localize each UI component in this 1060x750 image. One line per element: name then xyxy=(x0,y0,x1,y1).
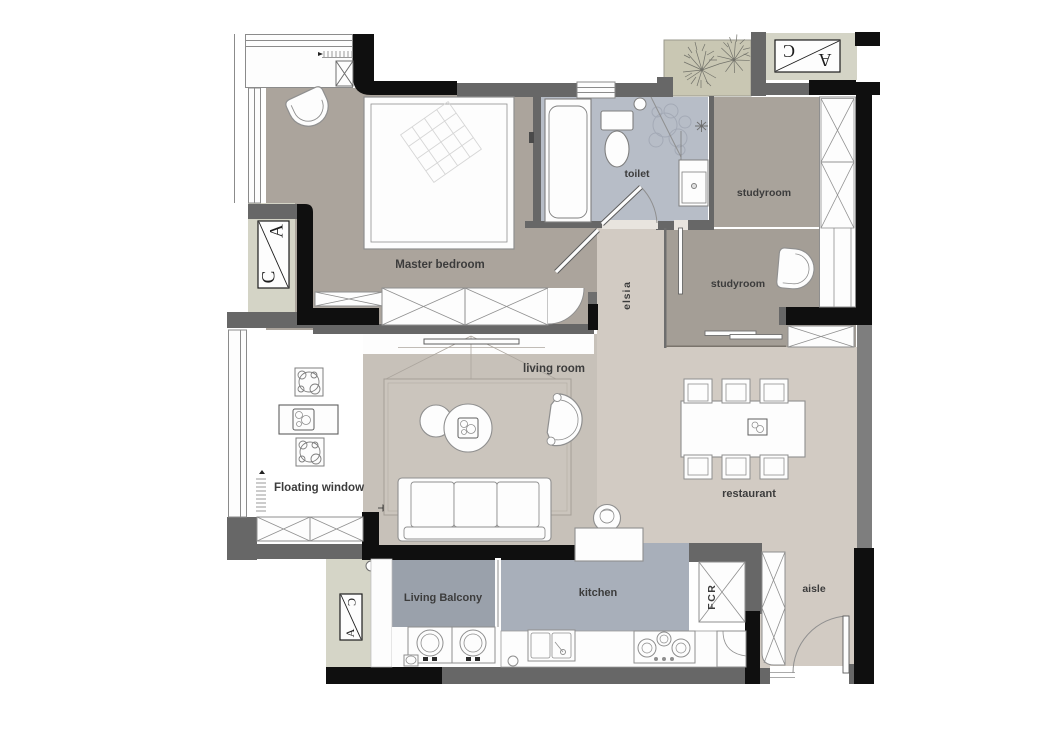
svg-text:A: A xyxy=(819,50,832,70)
svg-text:kitchen: kitchen xyxy=(579,587,618,599)
svg-text:restaurant: restaurant xyxy=(722,488,776,500)
svg-text:i: i xyxy=(621,289,633,292)
svg-text:l: l xyxy=(621,300,633,303)
svg-text:F: F xyxy=(706,603,718,610)
svg-text:C: C xyxy=(706,594,718,602)
svg-text:A: A xyxy=(267,224,288,238)
svg-text:C: C xyxy=(259,271,280,284)
svg-text:s: s xyxy=(621,293,633,299)
svg-text:aisle: aisle xyxy=(802,583,826,595)
svg-text:toilet: toilet xyxy=(624,168,650,180)
svg-text:living room: living room xyxy=(523,363,585,375)
svg-text:C: C xyxy=(783,41,795,61)
svg-text:Master bedroom: Master bedroom xyxy=(395,259,484,271)
svg-text:R: R xyxy=(706,585,718,593)
svg-text:Floating window: Floating window xyxy=(274,482,364,494)
svg-text:C: C xyxy=(345,598,359,606)
svg-text:e: e xyxy=(621,304,633,310)
svg-text:a: a xyxy=(621,282,633,288)
svg-text:A: A xyxy=(343,628,357,637)
svg-text:studyroom: studyroom xyxy=(737,187,791,199)
svg-text:studyroom: studyroom xyxy=(711,278,765,290)
svg-text:Living Balcony: Living Balcony xyxy=(404,592,483,604)
